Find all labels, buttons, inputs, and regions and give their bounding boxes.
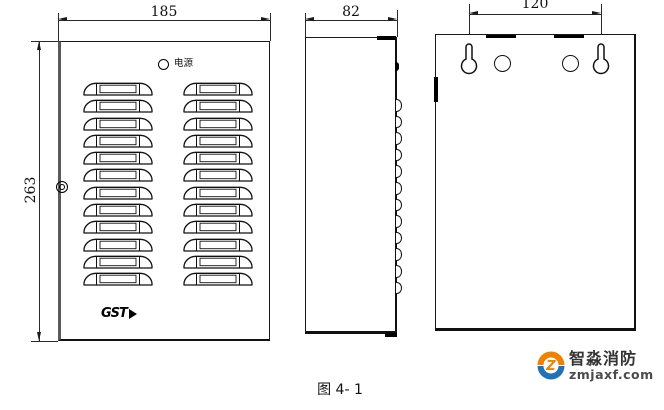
round-hole-right: [562, 55, 579, 72]
back-view-panel: [435, 34, 636, 331]
vent-louver: [183, 238, 253, 252]
side-louver-bump: [396, 132, 402, 145]
cabinet-lock-screw: [56, 181, 68, 193]
side-top-flange: [377, 36, 396, 40]
vent-louver: [83, 203, 153, 217]
vent-louver: [83, 220, 153, 234]
vent-louver: [83, 82, 153, 96]
vent-louver: [83, 117, 153, 131]
side-louver-bump: [396, 265, 402, 278]
dim-120-arrow-right: [592, 11, 601, 15]
vent-louver: [83, 99, 153, 113]
side-louver-bump: [396, 282, 402, 295]
side-louver-bump: [396, 116, 402, 129]
vent-louver: [83, 255, 153, 269]
vent-louver: [83, 238, 153, 252]
side-view-panel: [305, 37, 397, 334]
round-hole-left: [494, 55, 511, 72]
svg-text:Z: Z: [545, 359, 556, 374]
power-led-indicator: [158, 59, 169, 70]
zhimiao-logo-icon: Z: [536, 350, 566, 380]
vent-column-right: [183, 82, 253, 286]
gst-logo: GST: [101, 306, 137, 321]
dim-82-label: 82: [305, 5, 397, 19]
dim-263-label: 263: [17, 172, 45, 208]
vent-louver: [183, 117, 253, 131]
side-louver-bump: [396, 215, 402, 228]
vent-louver: [83, 186, 153, 200]
vent-louver: [83, 272, 153, 286]
side-louver-bump: [396, 149, 402, 162]
watermark-text: 智淼消防 zmjaxf.com: [569, 350, 654, 382]
side-louver-bump: [396, 199, 402, 212]
dim-185-label: 185: [58, 5, 270, 19]
vent-louver: [83, 168, 153, 182]
dim-263-tick-top: [31, 41, 58, 42]
vent-louver: [183, 134, 253, 148]
vent-louver: [83, 151, 153, 165]
gst-logo-mark: [129, 309, 137, 319]
vent-louver: [183, 203, 253, 217]
gst-logo-text: GST: [101, 306, 127, 321]
side-louver-bump: [396, 248, 402, 261]
figure-caption: 图 4- 1: [280, 379, 400, 399]
watermark-site: zmjaxf.com: [569, 368, 654, 382]
vent-column-left: [83, 82, 153, 286]
side-louver-bump: [396, 232, 402, 245]
watermark-brand: 智淼消防: [569, 350, 654, 368]
mount-keyhole-right: [591, 43, 611, 75]
vent-louver: [183, 220, 253, 234]
watermark: Z 智淼消防 zmjaxf.com: [536, 350, 654, 382]
vent-louver: [183, 99, 253, 113]
vent-louver: [183, 151, 253, 165]
back-top-notch-left: [486, 35, 516, 38]
vent-louver: [183, 82, 253, 96]
dim-120-line: [469, 14, 601, 15]
mount-keyhole-left: [459, 43, 479, 75]
lock-screw-center: [59, 184, 65, 190]
side-louver-bump: [396, 165, 402, 178]
vent-louver: [183, 186, 253, 200]
vent-louver: [183, 272, 253, 286]
dim-263-tick-bottom: [31, 341, 58, 342]
side-louver-bump: [396, 182, 402, 195]
dim-120-arrow-left: [469, 11, 478, 15]
side-latch: [395, 62, 399, 71]
technical-drawing-canvas: 185 263 82 120 电源 GST: [0, 0, 664, 410]
side-louver-bump: [396, 99, 402, 112]
front-view-panel: 电源 GST: [58, 41, 270, 341]
dim-120-label: 120: [469, 0, 601, 11]
vent-louver: [183, 255, 253, 269]
dim-263-arrow-top: [37, 41, 41, 50]
power-led-label: 电源: [174, 58, 193, 69]
back-top-notch-right: [554, 35, 584, 38]
back-hinge-mark: [434, 77, 438, 102]
side-bottom-foot: [385, 333, 397, 337]
dim-263-arrow-bottom: [37, 332, 41, 341]
vent-louver: [183, 168, 253, 182]
vent-louver: [83, 134, 153, 148]
